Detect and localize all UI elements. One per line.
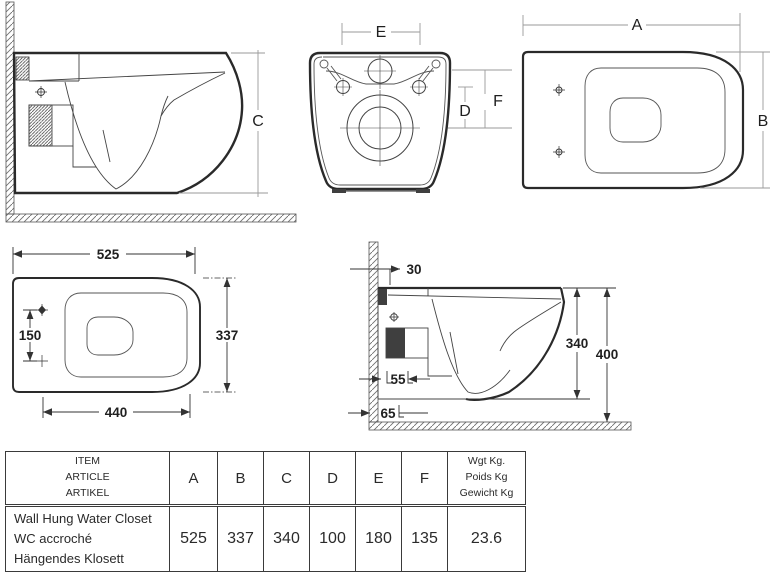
floor-hatch — [369, 422, 631, 430]
technical-drawings: C E — [0, 0, 776, 447]
inlet-pipe — [378, 289, 387, 305]
weight-header-line: Wgt Kg. — [448, 454, 525, 470]
dim-label-d: D — [459, 103, 471, 120]
spec-table-header-row: ITEM ARTICLE ARTIKEL A B C D E F Wgt Kg.… — [6, 452, 526, 506]
dim-label-c: C — [252, 113, 264, 130]
bowl-curve — [432, 299, 510, 393]
weight-header-line: Poids Kg — [448, 470, 525, 486]
spec-table-data-row: Wall Hung Water Closet WC accroché Hänge… — [6, 506, 526, 572]
weight-header-line: Gewicht Kg — [448, 486, 525, 502]
col-header-f: F — [402, 452, 448, 506]
value-c: 340 — [264, 506, 310, 572]
dim-label-55: 55 — [390, 372, 406, 387]
item-header-line: ARTICLE — [6, 470, 169, 486]
product-name-en: Wall Hung Water Closet — [14, 509, 169, 529]
item-header-line: ARTIKEL — [6, 486, 169, 502]
product-names-cell: Wall Hung Water Closet WC accroché Hänge… — [6, 506, 170, 572]
dim-label-150: 150 — [19, 328, 42, 343]
dim-label-400: 400 — [596, 347, 619, 362]
dim-label-e: E — [376, 24, 387, 41]
value-a: 525 — [170, 506, 218, 572]
col-header-b: B — [218, 452, 264, 506]
product-name-de: Hängendes Klosett — [14, 549, 169, 569]
fixing-hole-mark — [389, 312, 399, 322]
value-weight: 23.6 — [448, 506, 526, 572]
inlet-pipe-hatch — [16, 57, 29, 80]
side-profile-view: C — [6, 2, 296, 222]
dim-label-65: 65 — [380, 406, 396, 421]
spec-sheet: C E — [0, 0, 776, 577]
plan-view: A B — [523, 13, 770, 188]
dim-label-f: F — [493, 93, 503, 110]
dim-label-b: B — [758, 113, 769, 130]
floor-hatch — [6, 214, 296, 222]
dim-label-340: 340 — [566, 336, 589, 351]
product-name-fr: WC accroché — [14, 529, 169, 549]
item-header-cell: ITEM ARTICLE ARTIKEL — [6, 452, 170, 506]
value-b: 337 — [218, 506, 264, 572]
body-outline — [523, 52, 743, 188]
dim-label-337: 337 — [216, 328, 239, 343]
wall-hatch — [6, 2, 14, 214]
value-e: 180 — [356, 506, 402, 572]
rear-view: E D F — [310, 23, 512, 193]
col-header-e: E — [356, 452, 402, 506]
item-header-line: ITEM — [6, 454, 169, 470]
outlet-pipe-hatch — [29, 105, 52, 146]
weight-header-cell: Wgt Kg. Poids Kg Gewicht Kg — [448, 452, 526, 506]
col-header-c: C — [264, 452, 310, 506]
outlet-pipe — [386, 328, 405, 358]
col-header-a: A — [170, 452, 218, 506]
dim-label-a: A — [632, 17, 643, 34]
dim-label-525: 525 — [97, 247, 120, 262]
spec-table: ITEM ARTICLE ARTIKEL A B C D E F Wgt Kg.… — [5, 451, 526, 572]
value-d: 100 — [310, 506, 356, 572]
installation-side-view: 30 55 65 340 400 — [348, 242, 631, 430]
value-f: 135 — [402, 506, 448, 572]
bowl-profile — [466, 288, 564, 400]
dim-label-440: 440 — [105, 405, 128, 420]
dimensioned-plan-view: 525 150 337 440 — [13, 247, 243, 420]
col-header-d: D — [310, 452, 356, 506]
dim-label-30: 30 — [406, 262, 421, 277]
